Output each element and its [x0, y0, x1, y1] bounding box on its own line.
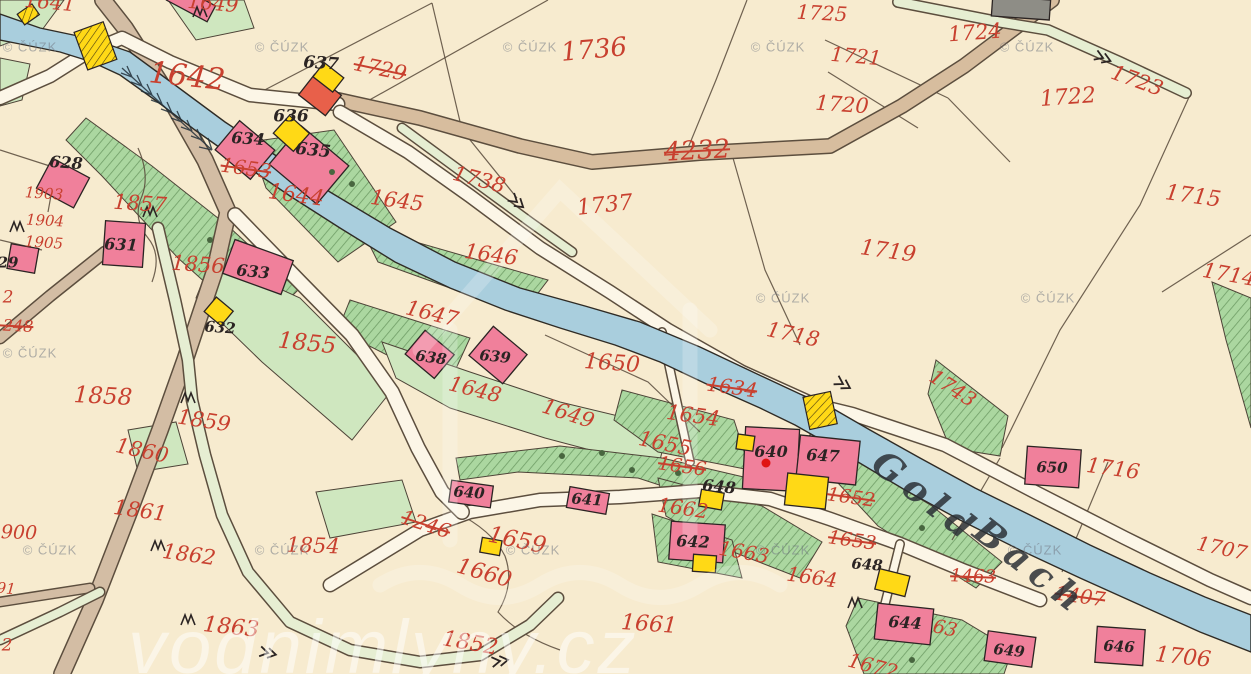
red-point-marker [762, 459, 771, 468]
building-wood [692, 554, 716, 573]
building [7, 244, 39, 273]
building-650 [1025, 446, 1082, 488]
map-drawing [0, 0, 1251, 674]
building-gray [991, 0, 1050, 20]
weir-icon [803, 391, 837, 429]
building-wood [480, 537, 502, 555]
building-649 [984, 631, 1036, 667]
building-631 [103, 221, 146, 268]
building-wood [736, 434, 755, 451]
cadastral-map: 1642164116491729173617251721172417201722… [0, 0, 1251, 674]
building-wood [699, 489, 725, 510]
building-wood [784, 473, 828, 509]
building-646 [1095, 626, 1145, 665]
building-644 [874, 603, 933, 645]
